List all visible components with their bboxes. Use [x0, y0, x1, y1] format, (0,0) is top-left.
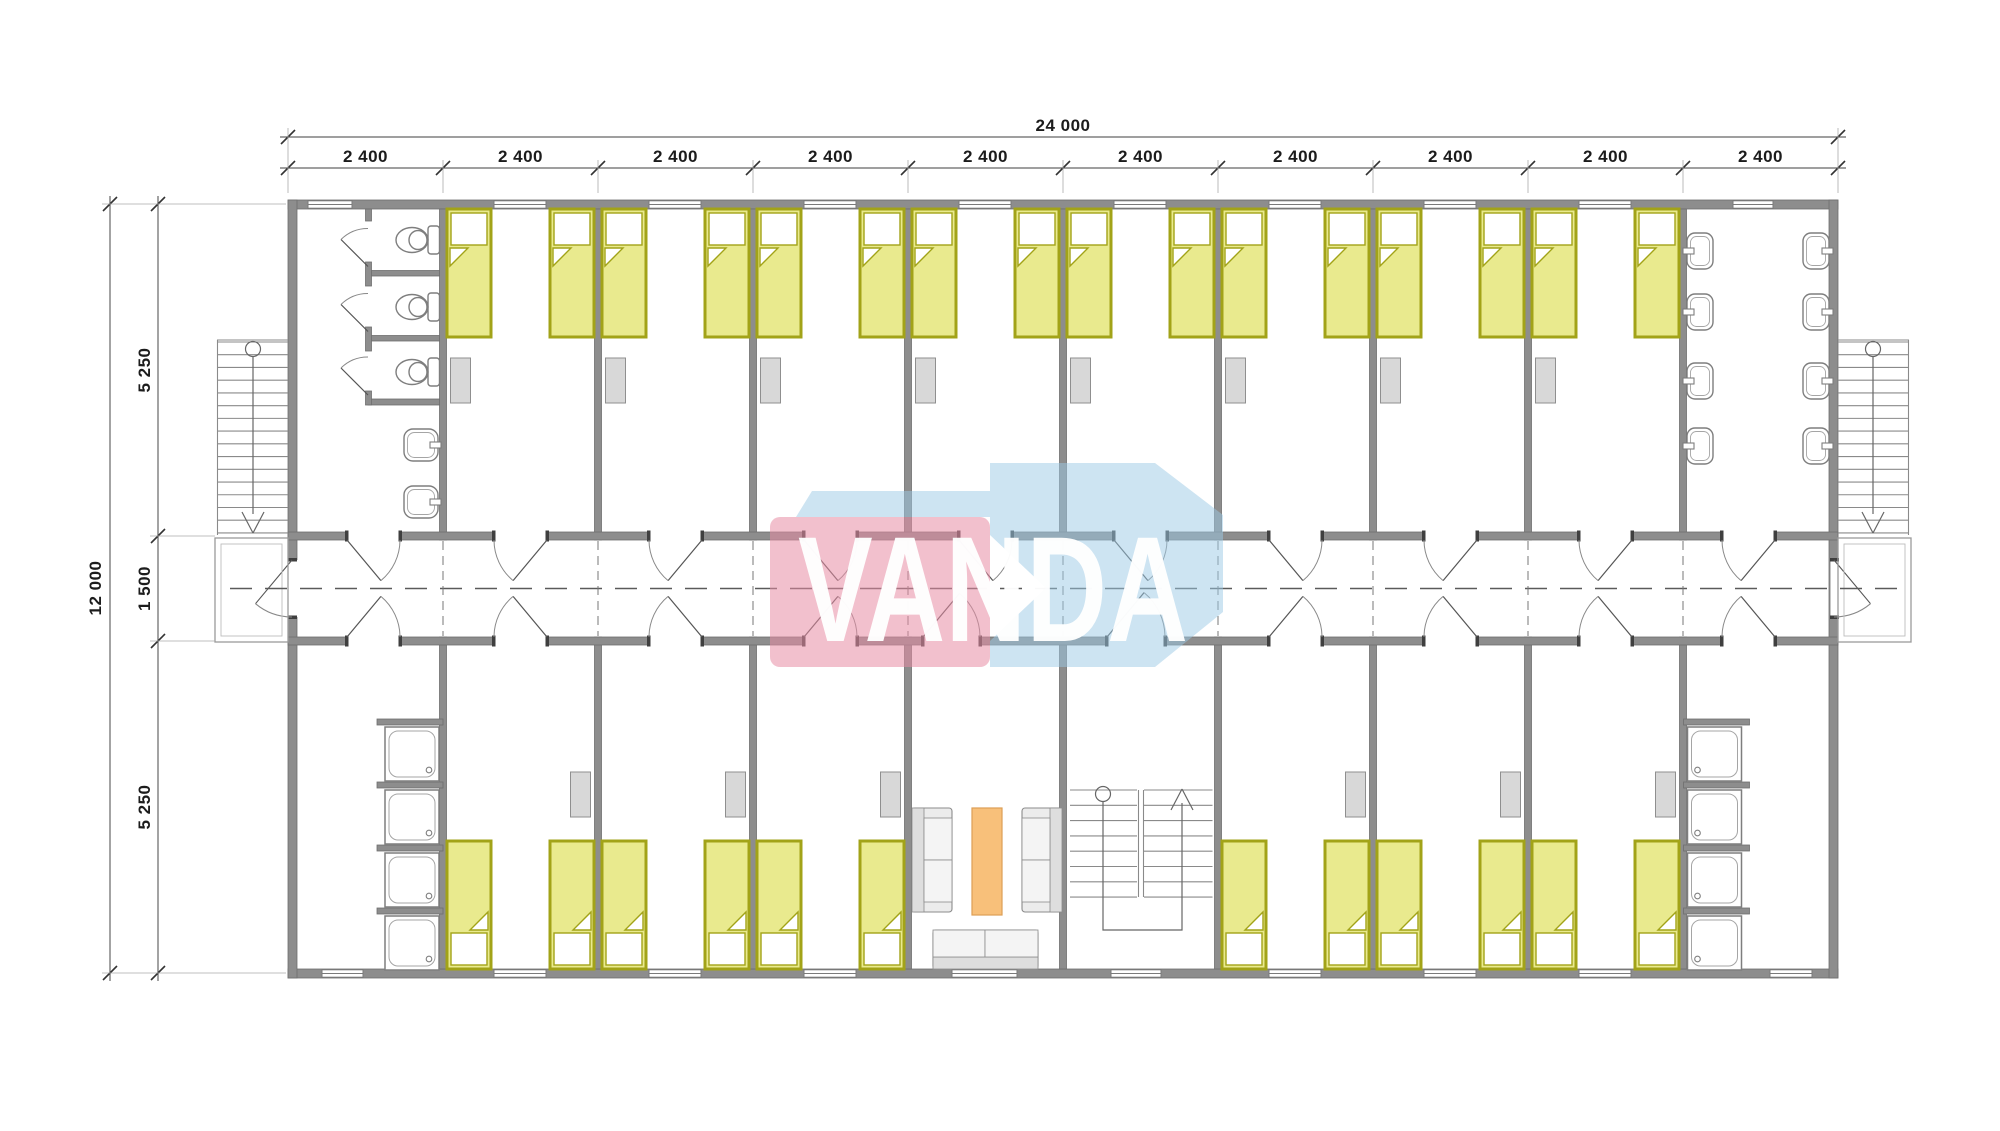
door-jamb	[1774, 531, 1778, 542]
door-jamb	[492, 531, 496, 542]
bed	[705, 209, 749, 337]
bed	[1635, 841, 1679, 969]
shower-tray	[385, 727, 439, 781]
door-swing-arc	[1424, 540, 1443, 581]
bed-pillow	[1174, 213, 1210, 245]
stair-landing	[215, 538, 288, 642]
sink	[1803, 428, 1833, 464]
exterior-staircase	[1838, 340, 1909, 535]
door-jamb	[701, 531, 705, 542]
landing-outline	[215, 538, 288, 642]
room-wall	[905, 637, 912, 969]
bed-pillow	[1329, 933, 1365, 965]
room-wall	[905, 209, 912, 540]
sofa-back	[912, 808, 924, 912]
landing-inner	[221, 544, 282, 636]
bed-pillow	[1639, 933, 1675, 965]
door-jamb	[1631, 636, 1635, 647]
logo-text: VANDA	[798, 505, 1188, 673]
room-wall	[1215, 637, 1222, 969]
door-swing-arc	[494, 540, 513, 581]
walkline-arrow	[1182, 789, 1193, 810]
bed	[1635, 209, 1679, 337]
door-leaf	[1443, 596, 1477, 637]
bed-pillow	[451, 933, 487, 965]
corridor-wall	[1775, 637, 1838, 645]
door-jamb	[1720, 636, 1724, 647]
corridor-wall	[288, 637, 347, 645]
shower-drain	[1695, 956, 1701, 962]
door-jamb	[1577, 531, 1581, 542]
bed-pillow	[761, 933, 797, 965]
bed	[1480, 841, 1524, 969]
stall-door-leaf	[341, 240, 368, 267]
corridor-wall	[1322, 532, 1424, 540]
shower-divider	[377, 782, 443, 788]
shower-stall	[385, 916, 439, 970]
corridor-wall	[1632, 532, 1722, 540]
door-leaf	[1269, 540, 1303, 581]
door-jamb	[1321, 636, 1325, 647]
door-swing-arc	[1722, 596, 1741, 637]
sofa-back	[933, 957, 1038, 969]
bed-pillow	[1226, 213, 1262, 245]
toilet-tank	[428, 293, 440, 321]
sink	[1803, 363, 1833, 399]
bed-pillow	[554, 933, 590, 965]
shower-divider	[377, 845, 443, 851]
shower-tray	[1688, 790, 1742, 844]
stair-landing	[1838, 538, 1911, 642]
bed	[447, 209, 491, 337]
sofa-back	[1050, 808, 1062, 912]
dim-label: 2 400	[1273, 147, 1318, 166]
bed-pillow	[1484, 213, 1520, 245]
room-wall	[1680, 209, 1687, 540]
corridor-wall	[1322, 637, 1424, 645]
wardrobe	[726, 772, 746, 817]
stall-door-arc	[341, 357, 368, 368]
door-jamb	[1422, 636, 1426, 647]
dim-label: 1 500	[135, 566, 154, 611]
walkline-start	[1096, 787, 1111, 802]
bed	[705, 841, 749, 969]
bed-pillow	[1071, 213, 1107, 245]
bed	[860, 841, 904, 969]
door-swing-arc	[1303, 540, 1322, 581]
wardrobe	[916, 358, 936, 403]
bed	[1067, 209, 1111, 337]
shower-stall	[1688, 853, 1742, 907]
bed-pillow	[709, 933, 745, 965]
shower-tray	[1688, 916, 1742, 970]
door-jamb	[1422, 531, 1426, 542]
bed	[1325, 209, 1369, 337]
corridor-wall	[288, 532, 347, 540]
door-jamb	[1577, 636, 1581, 647]
bed	[912, 209, 956, 337]
shower-stall	[385, 790, 439, 844]
stall-door-leaf	[341, 368, 368, 395]
corridor-wall	[1632, 637, 1722, 645]
room-wall	[1060, 637, 1067, 969]
door-jamb	[546, 531, 550, 542]
landing-outline	[1838, 538, 1911, 642]
bed	[757, 841, 801, 969]
sofa-cushion	[924, 860, 952, 902]
door-leaf	[1741, 540, 1775, 581]
toilet	[396, 358, 440, 386]
door-jamb	[399, 636, 403, 647]
wardrobe	[1536, 358, 1556, 403]
wardrobe	[881, 772, 901, 817]
walkline-arrow	[1873, 512, 1884, 533]
door-jamb	[345, 636, 349, 647]
vanda-watermark-logo: VANDA	[770, 463, 1223, 673]
bed	[550, 841, 594, 969]
door-opening	[1831, 560, 1841, 617]
sink	[1683, 428, 1713, 464]
shower-divider	[1684, 908, 1750, 914]
door-leaf	[1598, 596, 1632, 637]
dim-label: 2 400	[1428, 147, 1473, 166]
room-wall	[1370, 637, 1377, 969]
door-jamb	[647, 531, 651, 542]
door-jamb	[1267, 531, 1271, 542]
dim-left-total: 12 000	[86, 561, 105, 616]
room-wall	[440, 209, 447, 540]
door-leaf	[347, 540, 381, 581]
bed-pillow	[1329, 213, 1365, 245]
sink	[1683, 294, 1713, 330]
door-swing-arc	[381, 540, 400, 581]
door-swing-arc	[1579, 596, 1598, 637]
bed-pillow	[1639, 213, 1675, 245]
bed	[1015, 209, 1059, 337]
shower-drain	[1695, 893, 1701, 899]
dim-label: 5 250	[135, 784, 154, 829]
door-leaf	[513, 540, 547, 581]
shower-drain	[426, 893, 432, 899]
dim-label: 2 400	[1738, 147, 1783, 166]
sink-tap	[1683, 248, 1694, 254]
bed	[1222, 209, 1266, 337]
door-jamb	[1720, 531, 1724, 542]
stall-jamb-wall	[366, 209, 372, 221]
bed	[550, 209, 594, 337]
sink	[404, 429, 441, 461]
bed-pillow	[1536, 933, 1572, 965]
door-jamb	[492, 636, 496, 647]
toilet-seat	[409, 231, 427, 250]
stall-wall	[368, 399, 440, 405]
room-wall	[1680, 637, 1687, 969]
shower-divider	[1684, 782, 1750, 788]
door-leaf	[668, 596, 702, 637]
bed-pillow	[1381, 933, 1417, 965]
bed-pillow	[1536, 213, 1572, 245]
door-jamb	[1476, 636, 1480, 647]
bed	[1480, 209, 1524, 337]
room-wall	[750, 637, 757, 969]
shower-tray	[1688, 853, 1742, 907]
door-leaf	[1741, 596, 1775, 637]
shower-stall	[385, 727, 439, 781]
sofa	[1022, 808, 1062, 912]
wardrobe	[1656, 772, 1676, 817]
stall-door-arc	[341, 228, 368, 239]
door-jamb	[399, 531, 403, 542]
landing-inner	[1844, 544, 1905, 636]
sofa-cushion	[933, 930, 985, 957]
bed-pillow	[606, 213, 642, 245]
exit-door-swing-arc	[256, 604, 293, 617]
door-leaf	[1269, 596, 1303, 637]
door-swing-arc	[649, 596, 668, 637]
bed-pillow	[554, 213, 590, 245]
door-jamb	[1476, 531, 1480, 542]
sink	[1683, 363, 1713, 399]
dim-label: 2 400	[808, 147, 853, 166]
dim-label: 2 400	[1583, 147, 1628, 166]
shower-drain	[1695, 830, 1701, 836]
bed	[860, 209, 904, 337]
shower-divider	[377, 719, 443, 725]
shower-stall	[1688, 727, 1742, 781]
sink-tap	[430, 442, 441, 448]
lounge	[912, 808, 1062, 969]
wardrobe	[606, 358, 626, 403]
sink-tap	[1683, 309, 1694, 315]
shower-divider	[1684, 845, 1750, 851]
toilet-seat	[409, 298, 427, 317]
stall-door-arc	[341, 293, 368, 304]
room-wall	[1525, 637, 1532, 969]
shower-tray	[385, 853, 439, 907]
sofa	[933, 930, 1038, 969]
room-wall	[1215, 209, 1222, 540]
shower-stall	[1688, 790, 1742, 844]
bed-pillow	[606, 933, 642, 965]
bed-pillow	[864, 933, 900, 965]
door-jamb	[701, 636, 705, 647]
wardrobe	[571, 772, 591, 817]
sink-tap	[430, 499, 441, 505]
corridor-wall	[547, 637, 649, 645]
walkline-arrow	[253, 512, 264, 533]
door-swing-arc	[1722, 540, 1741, 581]
wardrobe	[761, 358, 781, 403]
room-wall	[595, 209, 602, 540]
dim-label: 5 250	[135, 347, 154, 392]
wardrobe	[1501, 772, 1521, 817]
bed-pillow	[761, 213, 797, 245]
door-leaf	[347, 596, 381, 637]
bed	[1170, 209, 1214, 337]
floorplan-drawing: VANDA 24 000 12 000 2 4002 4002 4002 400…	[0, 0, 2000, 1131]
sink	[1683, 233, 1713, 269]
bed	[1377, 209, 1421, 337]
shower-tray	[385, 790, 439, 844]
shower-tray	[1688, 727, 1742, 781]
room-wall	[595, 637, 602, 969]
sink	[1803, 294, 1833, 330]
sofa-cushion	[1022, 860, 1050, 902]
shower-stall	[1688, 916, 1742, 970]
bed	[1325, 841, 1369, 969]
stall-door-leaf	[341, 305, 368, 332]
floorplan-canvas: VANDA 24 000 12 000 2 4002 4002 4002 400…	[0, 0, 2000, 1131]
door-swing-arc	[649, 540, 668, 581]
door-leaf	[513, 596, 547, 637]
room-wall	[440, 637, 447, 969]
shower-stall	[385, 853, 439, 907]
sink-tap	[1822, 378, 1833, 384]
bed	[447, 841, 491, 969]
door-opening	[288, 560, 298, 617]
bed	[1377, 841, 1421, 969]
stall-wall	[368, 271, 440, 277]
dim-label: 2 400	[653, 147, 698, 166]
door-leaf	[1443, 540, 1477, 581]
wardrobe	[451, 358, 471, 403]
toilet	[396, 226, 440, 254]
sink	[404, 486, 441, 518]
door-swing-arc	[1424, 596, 1443, 637]
door-jamb	[345, 531, 349, 542]
bed	[602, 209, 646, 337]
bed-pillow	[1226, 933, 1262, 965]
door-swing-arc	[381, 596, 400, 637]
corridor-wall	[547, 532, 649, 540]
wardrobe	[1346, 772, 1366, 817]
sink-tap	[1683, 378, 1694, 384]
walkline-arrow	[1862, 512, 1873, 533]
bed	[1532, 209, 1576, 337]
door-swing-arc	[494, 596, 513, 637]
bed-pillow	[1381, 213, 1417, 245]
room-wall	[750, 209, 757, 540]
wardrobe	[1071, 358, 1091, 403]
sink-tap	[1822, 309, 1833, 315]
toilet-seat	[409, 363, 427, 382]
door-jamb	[546, 636, 550, 647]
sofa-cushion	[924, 818, 952, 860]
door-jamb	[1631, 531, 1635, 542]
door-leaf	[668, 540, 702, 581]
sink	[1803, 233, 1833, 269]
wardrobe	[1381, 358, 1401, 403]
shower-divider	[1684, 719, 1750, 725]
bed-pillow	[451, 213, 487, 245]
bed-pillow	[1484, 933, 1520, 965]
wardrobe	[1226, 358, 1246, 403]
sink-tap	[1822, 248, 1833, 254]
corridor-wall	[1477, 532, 1579, 540]
dim-top-total: 24 000	[1036, 116, 1091, 135]
dim-label: 2 400	[343, 147, 388, 166]
bed	[1532, 841, 1576, 969]
sofa-cushion	[985, 930, 1038, 957]
bed-pillow	[1019, 213, 1055, 245]
dim-label: 2 400	[498, 147, 543, 166]
shower-drain	[426, 767, 432, 773]
dim-label: 2 400	[1118, 147, 1163, 166]
shower-drain	[426, 830, 432, 836]
door-jamb	[647, 636, 651, 647]
door-jamb	[1321, 531, 1325, 542]
room-wall	[1370, 209, 1377, 540]
bed-pillow	[916, 213, 952, 245]
bed	[1222, 841, 1266, 969]
stall-wall	[368, 336, 440, 342]
bed	[602, 841, 646, 969]
shower-divider	[377, 908, 443, 914]
walkline-arrow	[1171, 789, 1182, 810]
shower-drain	[426, 956, 432, 962]
door-swing-arc	[1303, 596, 1322, 637]
corridor-wall	[1775, 532, 1838, 540]
sink-tap	[1822, 443, 1833, 449]
exterior-staircase	[217, 340, 288, 535]
door-jamb	[1774, 636, 1778, 647]
toilet	[396, 293, 440, 321]
bed-pillow	[864, 213, 900, 245]
corridor-wall	[400, 532, 494, 540]
corridor-wall	[1477, 637, 1579, 645]
toilet-tank	[428, 358, 440, 386]
sofa-cushion	[1022, 818, 1050, 860]
shower-tray	[385, 916, 439, 970]
walkline-arrow	[242, 512, 253, 533]
toilet-tank	[428, 226, 440, 254]
door-jamb	[288, 558, 297, 562]
door-swing-arc	[1579, 540, 1598, 581]
room-wall	[1525, 209, 1532, 540]
door-jamb	[1267, 636, 1271, 647]
bed	[757, 209, 801, 337]
bed-pillow	[709, 213, 745, 245]
sofa	[912, 808, 952, 912]
dim-label: 2 400	[963, 147, 1008, 166]
sink-tap	[1683, 443, 1694, 449]
door-leaf	[1598, 540, 1632, 581]
exit-door-leaf	[256, 560, 293, 604]
shower-drain	[1695, 767, 1701, 773]
interior-staircase	[1070, 787, 1213, 931]
corridor-wall	[400, 637, 494, 645]
coffee-table	[972, 808, 1002, 915]
